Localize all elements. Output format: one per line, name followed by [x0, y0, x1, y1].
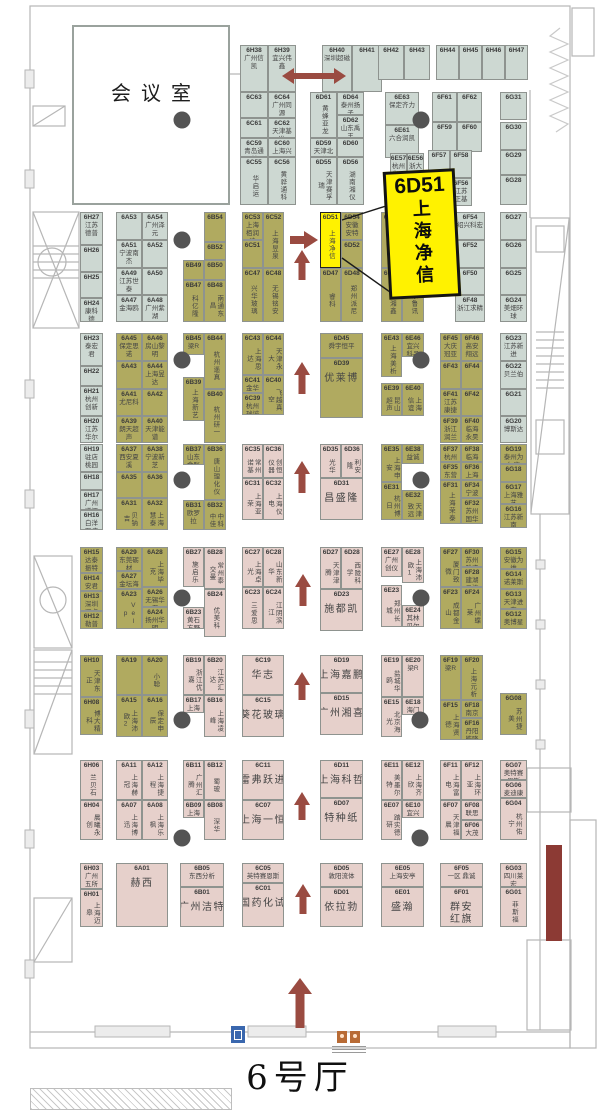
booth-id-label: 6D47 [323, 270, 339, 278]
booth-6D07: 6D07特种纸 [320, 798, 363, 840]
booth-id-label: 6A29 [121, 549, 137, 557]
booth-company-label: 六合润凯 [388, 135, 416, 143]
booth-id-label: 6F44 [465, 363, 480, 371]
booth-company-label: 天津津腾 [323, 558, 339, 588]
booth-id-label: 6C15 [255, 697, 271, 705]
booth-6F38: 6F38临海品科 [461, 444, 483, 462]
booth-id-label: 6C63 [246, 94, 262, 102]
booth-id-label: 6H39 [274, 47, 290, 55]
booth-6F30: 6F30苏州雅睿 [461, 547, 483, 567]
booth-id-label: 6E46 [405, 335, 420, 343]
booth-company-label: 江苏新进 [501, 343, 526, 359]
booth-company-label: 江苏世泰 [117, 278, 141, 294]
booth-company-label: 临海永昊 [462, 426, 482, 442]
booth-id-label: 6A36 [147, 474, 163, 482]
booth-6E38: 6E38益诚 [402, 444, 424, 464]
booth-6H43: 6H43 [404, 45, 430, 80]
service-desk-icon [350, 1031, 360, 1043]
booth-6A53: 6A53 [116, 212, 142, 240]
booth-id-label: 6D55 [316, 159, 332, 167]
booth-company-label: 天津永大 [266, 344, 282, 374]
booth-6H20: 6H20江苏华尔康 [80, 416, 103, 443]
booth-6D51: 6D51上海净信 [320, 212, 341, 268]
booth-id-label: 6B54 [207, 214, 223, 222]
booth-company-label: 上海思达 [245, 344, 261, 374]
booth-company-label: 英特赛恩斯 [246, 873, 281, 881]
booth-6F06: 6F06大茂 [461, 820, 483, 840]
booth-company-label: 安君研 [81, 583, 102, 591]
booth-id-label: 6E56 [408, 155, 423, 163]
booth-6H14: 6H14安君研 [80, 573, 103, 591]
booth-6D45: 6D45舜宇恒平 [320, 333, 363, 358]
booth-id-label: 6B24 [207, 591, 223, 599]
booth-id-label: 6F27 [443, 549, 458, 557]
booth-company-label: 上海申安 [384, 455, 400, 481]
booth-6F19: 6F19梁R [440, 655, 461, 700]
booth-id-label: 6H17 [84, 492, 100, 500]
booth-6C27: 6C27上海卓光 [242, 547, 263, 587]
booth-id-label: 6A52 [147, 242, 163, 250]
booth-6A11: 6A11上海赫冠 [116, 760, 142, 800]
booth-company-label: 益诚 [406, 454, 421, 462]
booth-company-label: 高安翔远 [462, 343, 482, 359]
booth-6F37: 6F37杭州茂丰 [440, 444, 461, 462]
booth-id-label: 6D59 [316, 140, 332, 148]
booth-company-label: 上海昱泉 [270, 223, 278, 267]
booth-company-label: 无锡华卫 [143, 597, 167, 607]
booth-company-label: 江苏华尔康 [81, 426, 102, 443]
booth-id-label: 6E35 [384, 446, 399, 454]
booth-id-label: 6G24 [506, 297, 522, 305]
booth-company-label: 中科中佳 [207, 511, 223, 529]
booth-id-label: 6F61 [437, 94, 452, 102]
booth-company-label: 上海信谊 [405, 394, 421, 415]
booth-company-label: 广州汇腾 [186, 771, 202, 799]
booth-6A38: 6A38宁波新芝 [142, 444, 168, 472]
booth-company-label: 晨曦永创 [84, 811, 100, 839]
booth-id-label: 6B27 [186, 549, 202, 557]
booth-id-label: 6H08 [84, 699, 100, 707]
booth-id-label: 6F30 [465, 549, 480, 557]
booth-6A01: 6A01赫西 [116, 863, 168, 927]
booth-company-label: 杭州茂丰 [441, 454, 460, 462]
booth-id-label: 6E18 [405, 699, 420, 707]
booth-company-label: 美畑环球 [501, 305, 526, 321]
booth-id-label: 6C24 [266, 589, 282, 597]
booth-6C63: 6C63 [240, 92, 268, 118]
pillar-dot [412, 830, 429, 847]
booth-company-label: 驻店桃园 [81, 454, 102, 470]
booth-id-label: 6B40 [207, 391, 223, 399]
booth-6D64: 6D64泰州扬子 [337, 92, 364, 115]
booth-id-label: 6G14 [506, 571, 522, 579]
booth-6H01: 6H01上海迈皋 [80, 889, 103, 927]
booth-id-label: 6D05 [334, 865, 350, 873]
booth-company-label: 江阴滨江 [266, 598, 282, 628]
booth-id-label: 6A27 [121, 573, 137, 581]
booth-6D54: 6D54安徽安特 [341, 212, 363, 240]
booth-6F32: 6F32苏州国华 [461, 498, 483, 524]
booth-company-label: 兰贝石 [88, 771, 96, 799]
booth-company-label: 上海科哲 [320, 775, 363, 787]
booth-id-label: 6G08 [506, 695, 522, 703]
booth-6A28: 6A28上海毕克 [142, 547, 168, 587]
booth-id-label: 6F05 [454, 865, 469, 873]
booth-id-label: 6G01 [506, 889, 522, 897]
booth-company-label: 天津进东 [501, 599, 526, 609]
booth-6F59: 6F59 [432, 122, 457, 152]
booth-id-label: 6C53 [245, 214, 261, 222]
booth-6G01: 6G01菲斯福 [500, 887, 527, 927]
booth-id-label: 6H12 [84, 613, 100, 621]
booth-company-label: 梁R [406, 665, 419, 673]
booth-id-label: 6A07 [121, 802, 137, 810]
booth-id-label: 6H45 [463, 47, 479, 55]
booth-company-label: 天津基准 [269, 128, 295, 138]
booth-6B44: 6B44杭州遥真 [204, 333, 226, 389]
booth-id-label: 6A35 [121, 474, 137, 482]
booth-6A43: 6A43 [116, 361, 142, 389]
booth-6G18: 6G18 [500, 464, 527, 482]
booth-6D62: 6D62山东禹王 [337, 115, 364, 138]
booth-6G07: 6G07奥特赛恩斯 [500, 760, 527, 780]
booth-company-label: 上海天呈 [184, 810, 203, 818]
booth-id-label: 6B20 [207, 657, 223, 665]
booth-id-label: 6C59 [246, 140, 262, 148]
booth-6F35: 6F35东营雅联 [440, 462, 461, 480]
booth-id-label: 6A51 [121, 242, 137, 250]
booth-company-label: 郑州派尼 [348, 279, 356, 321]
booth-id-label: 6E40 [405, 385, 420, 393]
booth-6A49: 6A49江苏世泰 [116, 268, 142, 295]
booth-6F15: 6F15上海贤德 [440, 700, 461, 740]
booth-company-label: 杭州创新 [81, 396, 102, 412]
booth-id-label: 6A43 [121, 363, 137, 371]
booth-company-label: 浙江润兰 [441, 426, 460, 442]
booth-6H40: 6H40深圳超磁 [322, 45, 352, 92]
booth-company-label: 飞越真空 [266, 386, 282, 414]
booth-id-label: 6B01 [194, 889, 210, 897]
booth-id-label: 6D11 [334, 762, 349, 770]
booth-6D61: 6D61黄蜂亚龙 [310, 92, 337, 138]
booth-id-label: 6E63 [394, 94, 409, 102]
booth-id-label: 6G03 [506, 865, 522, 873]
booth-6A07: 6A07上海博迅 [116, 800, 142, 840]
booth-id-label: 6D28 [344, 549, 360, 557]
booth-company-label: 上海富电 [443, 771, 459, 799]
booth-id-label: 6G19 [506, 446, 522, 454]
booth-id-label: 6C01 [255, 885, 271, 893]
booth-6B05: 6B05东西分析 [180, 863, 224, 887]
booth-company-label: 丹阳皓隆 [462, 728, 482, 740]
booth-6F41: 6F41江苏康捷 [440, 389, 461, 416]
booth-id-label: 6F11 [443, 762, 457, 770]
booth-company-label: 广州信凯 [241, 55, 267, 71]
booth-id-label: 6A28 [147, 549, 163, 557]
booth-company-label: 南通东昌 [207, 291, 223, 321]
booth-id-label: 6D19 [334, 657, 350, 665]
booth-id-label: 6C55 [246, 159, 262, 167]
booth-company-label: 诺莱斯 [503, 579, 525, 587]
booth-id-label: 6A31 [121, 500, 137, 508]
booth-6C48: 6C48无锡铭安 [263, 268, 284, 322]
booth-6E35: 6E35上海申安 [381, 444, 402, 482]
booth-6D28: 6D28西陇科学 [341, 547, 363, 589]
booth-id-label: 6F34 [465, 482, 480, 490]
booth-id-label: 6F12 [465, 762, 480, 770]
booth-id-label: 6F08 [465, 802, 480, 810]
booth-6F44: 6F44 [461, 361, 483, 389]
booth-company-label: 上海元析 [468, 666, 476, 699]
booth-id-label: 6F35 [443, 464, 458, 472]
booth-6C40: 6C40飞越真空 [263, 375, 284, 415]
booth-id-label: 6F32 [465, 500, 480, 508]
booth-company-label: 山东新华 [266, 558, 282, 586]
booth-company-label: 大庆冠亚 [441, 343, 460, 359]
booth-id-label: 6G20 [506, 418, 522, 426]
booth-6G19: 6G19泰州为尔康 [500, 444, 527, 464]
booth-6F28: 6F28建湖云涛 [461, 567, 483, 587]
booth-id-label: 6H01 [84, 891, 100, 899]
booth-id-label: 6F52 [463, 242, 478, 250]
booth-company-label: 贝钠吉 [121, 509, 137, 529]
booth-6G30: 6G30 [500, 122, 527, 150]
booth-company-label: 一区 鼎诚 [447, 873, 477, 881]
booth-company-label: 江苏新南 [501, 514, 526, 528]
booth-6B47: 6B47科亿隆 [183, 280, 204, 322]
booth-id-label: 6B31 [186, 502, 202, 510]
booth-id-label: 6F37 [443, 446, 458, 454]
booth-company-label: 广州泽元 [143, 222, 167, 238]
booth-6D11: 6D11上海科哲 [320, 760, 363, 798]
booth-6C56: 6C56黄骅通科 [268, 157, 296, 205]
booth-id-label: 6F28 [465, 569, 480, 577]
booth-id-label: 6A49 [121, 270, 137, 278]
booth-6A27: 6A27金坛海鑫 [116, 571, 142, 589]
booth-company-label: 金海鸥 [118, 305, 140, 313]
booth-id-label: 6H04 [84, 802, 100, 810]
booth-company-label: 奥特赛恩斯 [501, 770, 526, 780]
booth-6B19: 6B19浙江优嘉 [183, 655, 204, 695]
booth-id-label: 6B09 [186, 802, 202, 810]
booth-id-label: 6A53 [121, 214, 137, 222]
booth-id-label: 6B23 [186, 609, 202, 617]
booth-id-label: 6E11 [384, 762, 399, 770]
booth-6G03: 6G03四川莱宏 [500, 863, 527, 887]
booth-company-label: 广州紫湖 [143, 305, 167, 321]
booth-id-label: 6H19 [84, 446, 100, 454]
booth-company-label: 广州湘喜 [320, 708, 363, 720]
booth-id-label: 6A42 [147, 391, 163, 399]
booth-id-label: 6D27 [323, 549, 339, 557]
booth-6A12: 6A12上海捷程 [142, 760, 168, 800]
booth-company-label: 天津赛孚瑞 [316, 168, 332, 204]
booth-6G25: 6G25 [500, 268, 527, 295]
booth-6G28: 6G28 [500, 175, 527, 205]
booth-id-label: 6G07 [506, 762, 522, 770]
booth-company-label: 昆山超声 [384, 394, 400, 415]
booth-id-label: 6H16 [84, 512, 100, 520]
booth-id-label: 6E23 [384, 587, 399, 595]
booth-6H16: 6H16白洋医疗 [80, 510, 103, 530]
booth-company-label: 依拉勃 [323, 902, 360, 914]
booth-6E23: 6E23郑州长城 [381, 585, 402, 627]
booth-company-label: 广州创仪 [382, 557, 401, 573]
booth-6C15: 6C15葵花玻璃 [242, 695, 284, 737]
booth-company-label: 上海凌峰 [207, 706, 223, 736]
booth-6H27: 6H27江苏德普 [80, 212, 103, 245]
booth-id-label: 6B52 [207, 244, 223, 252]
booth-id-label: 6G27 [506, 214, 522, 222]
booth-company-label: 梁R [187, 343, 200, 351]
booth-6F08: 6F08联思 [461, 800, 483, 820]
booth-id-label: 6A50 [147, 270, 163, 278]
booth-id-label: 6G17 [506, 484, 522, 492]
booth-6G20: 6G20博斯达 [500, 416, 527, 443]
booth-6C64: 6C64广州同源 [268, 92, 296, 118]
booth-company-label: 上海卓光 [245, 558, 261, 586]
pillar-dot [174, 712, 191, 729]
highlight-callout: 6D51 上海净信 [383, 168, 462, 300]
booth-6E05: 6E05上海安亭 [381, 863, 424, 887]
booth-6A50: 6A50 [142, 268, 168, 295]
booth-6E32: 6E32天津致远 [402, 490, 424, 520]
booth-6D05: 6D05敦阳流体 [320, 863, 363, 887]
booth-id-label: 6A08 [147, 802, 163, 810]
booth-6A35: 6A35 [116, 472, 142, 498]
booth-6D56: 6D56湖南湘仪 [337, 157, 364, 205]
booth-6F62: 6F62 [457, 92, 482, 122]
booth-company-label: 浙江优嘉 [186, 666, 202, 694]
booth-company-label: 上海雅艺 [501, 492, 526, 504]
booth-6H25: 6H25 [80, 272, 103, 298]
booth-id-label: 6H47 [509, 47, 525, 55]
facility-caption-lines [332, 1046, 366, 1053]
booth-company-label: Velp [121, 600, 137, 628]
booth-id-label: 6B49 [186, 262, 202, 270]
booth-company-label: 美墨尔特 [384, 771, 400, 799]
booth-company-label: 扬州华明 [143, 617, 167, 629]
booth-company-label: 广州同源 [269, 102, 295, 118]
booth-id-label: 6D36 [344, 446, 360, 454]
booth-company-label: 盐城华鸥 [384, 666, 400, 696]
pillar-dot [413, 590, 430, 607]
booth-6B28: 6B28常州泰交曼 [204, 547, 226, 589]
booth-6D55: 6D55天津赛孚瑞 [310, 157, 337, 205]
booth-id-label: 6C60 [274, 140, 290, 148]
booth-6A16: 6A16保定申辰 [142, 695, 168, 737]
booth-company-label: 苏州雅睿 [462, 557, 482, 567]
booth-id-label: 6B32 [207, 502, 223, 510]
booth-6B48: 6B48南通东昌 [204, 280, 226, 322]
booth-company-label: 安徽为维 [501, 557, 526, 569]
booth-6D60: 6D60 [337, 138, 364, 157]
booth-6A36: 6A36 [142, 472, 168, 498]
booth-id-label: 6B11 [186, 762, 201, 770]
booth-6E28: 6E28上海沛欧1 [402, 547, 424, 583]
booth-id-label: 6B36 [207, 446, 223, 454]
pillar-dot [174, 590, 191, 607]
booth-id-label: 6G29 [506, 152, 522, 160]
booth-6F46: 6F46高安翔远 [461, 333, 483, 361]
booth-6D19: 6D19上海嘉鹏 [320, 655, 363, 693]
expansion-joint [550, 28, 568, 132]
booth-id-label: 6H43 [409, 47, 425, 55]
booth-id-label: 6D56 [343, 159, 359, 167]
booth-id-label: 6B12 [207, 762, 223, 770]
booth-id-label: 6H41 [359, 47, 375, 55]
booth-id-label: 6E20 [405, 657, 420, 665]
booth-id-label: 6C35 [245, 446, 261, 454]
booth-company-label: 宁波新芝 [143, 454, 167, 470]
booth-company-label: 西安夏溪 [117, 454, 141, 470]
booth-6B27: 6B27施启乐 [183, 547, 204, 587]
booth-6F23: 6F23成都金山 [440, 587, 461, 629]
booth-6A26: 6A26无锡华卫 [142, 587, 168, 607]
pillar-dot [174, 830, 191, 847]
booth-company-label: 光华 [327, 455, 335, 477]
booth-company-label: 泰宏君 [81, 343, 102, 359]
booth-id-label: 6H24 [84, 300, 100, 308]
booth-company-label: 浙江求精 [456, 305, 484, 313]
booth-company-label: 上海迈皋 [84, 900, 100, 926]
booth-id-label: 6C51 [245, 242, 261, 250]
booth-6H44: 6H44 [436, 45, 459, 80]
pillar-dot [174, 232, 191, 249]
booth-id-label: 6D54 [344, 214, 360, 222]
floor-plan: 会议室 6H38广州信凯6H39宜兴伟鑫6H40深圳超磁6H416H426H43… [0, 0, 600, 1111]
booth-6H42: 6H42 [378, 45, 404, 80]
booth-6G23: 6G23江苏新进 [500, 333, 527, 361]
booth-6H08: 6H08博大精科 [80, 697, 103, 735]
booth-6F40: 6F40临海永昊 [461, 416, 483, 443]
booth-id-label: 6H22 [84, 368, 100, 376]
booth-id-label: 6B37 [186, 446, 202, 454]
booth-id-label: 6A40 [147, 418, 163, 426]
booth-6B23: 6B23黄石方野 [183, 607, 204, 629]
booth-id-label: 6H20 [84, 418, 100, 426]
booth-company-label: 上海安亭 [389, 873, 417, 881]
booth-6A19: 6A19 [116, 655, 142, 695]
booth-6F07: 6F07天津福晨 [440, 800, 461, 840]
booth-id-label: 6A19 [121, 657, 137, 665]
booth-id-label: 6G26 [506, 242, 522, 250]
booth-company-label: 上海嘉鹏 [320, 670, 363, 682]
booth-6F36: 6F36上海麦克林 [461, 462, 483, 480]
booth-company-label: 敦阳流体 [328, 873, 356, 881]
booth-6H26: 6H26 [80, 245, 103, 272]
booth-6A45: 6A45保定思诺 [116, 333, 142, 361]
booth-6D23: 6D23施都凯 [320, 589, 363, 631]
booth-6B31: 6B31欧罗拉 [183, 500, 204, 530]
booth-company-label: 华启运 [250, 168, 258, 204]
booth-id-label: 6D48 [344, 270, 360, 278]
booth-id-label: 6H10 [84, 657, 100, 665]
booth-company-label: 天津福晨 [443, 811, 459, 839]
booth-company-label: 小聪 [151, 666, 159, 694]
booth-6F60: 6F60 [457, 122, 482, 152]
booth-6A44: 6A44上海昱达 [142, 361, 168, 389]
booth-id-label: 6C31 [245, 480, 261, 488]
booth-id-label: 6E05 [395, 865, 410, 873]
booth-id-label: 6A38 [147, 446, 163, 454]
booth-6A31: 6A31贝钠吉 [116, 498, 142, 530]
booth-6C01: 6C01国药化试 [242, 883, 284, 927]
booth-company-label: 朗天超声 [117, 426, 141, 442]
booth-id-label: 6F01 [454, 889, 469, 897]
booth-id-label: 6F54 [463, 214, 478, 222]
booth-id-label: 6C27 [245, 549, 261, 557]
